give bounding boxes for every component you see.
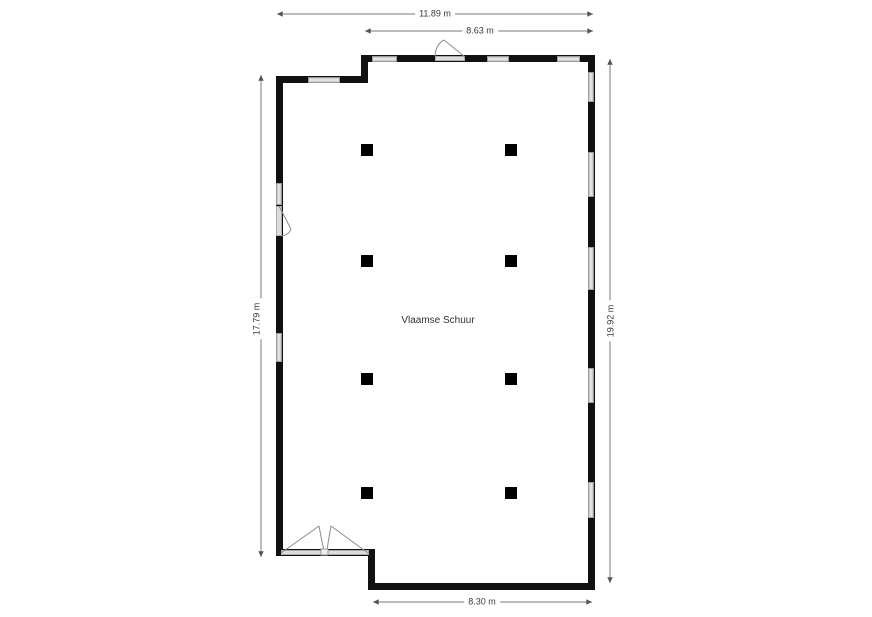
window	[588, 247, 594, 290]
window	[276, 183, 282, 205]
door-opening-bottom-double	[281, 550, 369, 555]
plan-graphics-overlay	[0, 0, 872, 617]
floorplan-canvas: 11.89 m 8.63 m 17.79 m 19.92 m 8.30 m Vl…	[0, 0, 872, 617]
door-opening-top	[435, 56, 465, 61]
window	[588, 482, 594, 518]
door-opening-left	[276, 206, 282, 236]
window	[308, 77, 340, 83]
window	[588, 152, 594, 197]
dimension-label-right: 19.92 m	[606, 301, 617, 342]
column	[505, 255, 517, 267]
column	[361, 373, 373, 385]
wall-left	[276, 76, 283, 556]
column	[505, 144, 517, 156]
room-label: Vlaamse Schuur	[401, 316, 474, 326]
dimension-label-top-outer: 11.89 m	[415, 9, 455, 20]
window	[276, 333, 282, 362]
column	[505, 373, 517, 385]
column	[361, 487, 373, 499]
dimension-label-top-inner: 8.63 m	[462, 26, 498, 37]
window	[557, 56, 580, 62]
dimension-label-left: 17.79 m	[252, 299, 263, 340]
column	[361, 144, 373, 156]
wall-bottom	[368, 583, 595, 590]
window	[588, 72, 594, 102]
column	[361, 255, 373, 267]
window	[372, 56, 397, 62]
window	[487, 56, 509, 62]
window	[588, 368, 594, 403]
column	[505, 487, 517, 499]
dimension-label-bottom: 8.30 m	[464, 597, 500, 608]
